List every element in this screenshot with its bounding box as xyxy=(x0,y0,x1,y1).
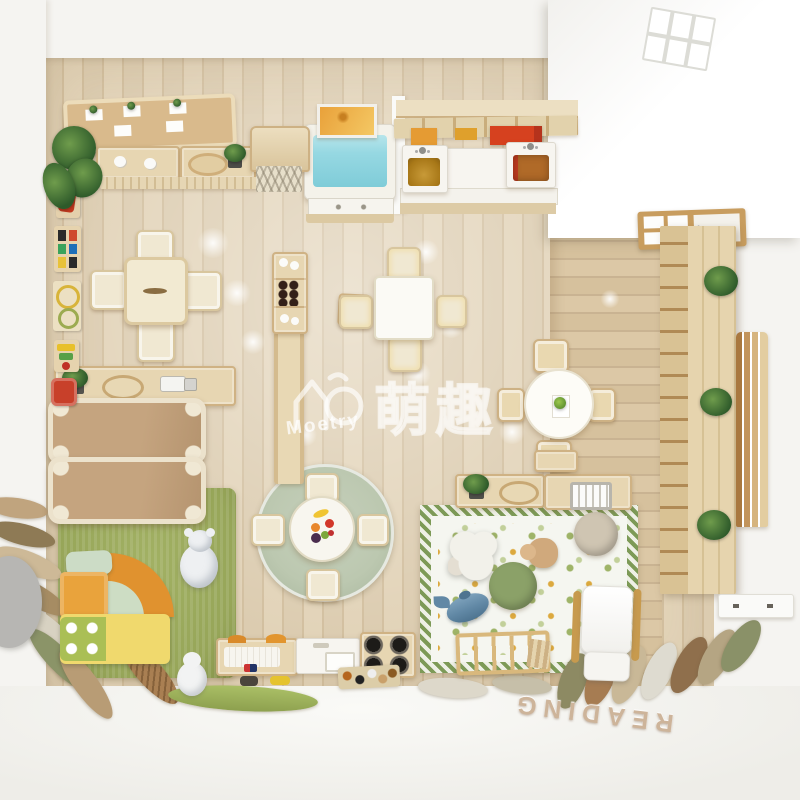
spiral-yellow xyxy=(56,285,80,309)
chair xyxy=(182,271,222,311)
toy-truck-cab xyxy=(184,378,197,391)
plush-head xyxy=(183,652,201,668)
bear-ear xyxy=(206,528,215,537)
peg xyxy=(69,230,77,241)
kitchen-sink-right xyxy=(506,142,556,188)
bear-ear xyxy=(184,528,193,537)
kitchen-unit-rolldoor xyxy=(216,638,298,676)
ceiling-light xyxy=(644,36,666,62)
soft-dots-green xyxy=(60,617,106,661)
cabinet-top-left xyxy=(96,146,180,180)
toy-orange xyxy=(311,523,320,532)
shelf-plant xyxy=(700,388,732,416)
chair xyxy=(533,339,569,373)
white-jar xyxy=(291,317,299,325)
soft-slab-yellow xyxy=(60,614,170,664)
white-jar xyxy=(290,261,299,270)
oval-tray xyxy=(499,481,539,505)
white-jar xyxy=(280,314,289,323)
peg xyxy=(58,244,66,255)
peg xyxy=(58,257,66,268)
oval-tray xyxy=(188,153,228,176)
light-reflection xyxy=(498,420,526,444)
table-plant xyxy=(554,397,566,409)
chair xyxy=(339,295,373,329)
chair xyxy=(436,295,467,328)
spiral-green xyxy=(58,308,79,329)
sink-basin-gold xyxy=(408,158,440,186)
left-wall xyxy=(0,0,46,800)
faucet xyxy=(419,147,426,154)
bookshelf-front xyxy=(660,226,688,594)
drawer-base xyxy=(306,214,394,223)
floor-toy-dark xyxy=(240,676,258,686)
reading-cabinet-2 xyxy=(544,474,632,510)
chair xyxy=(388,336,422,372)
stacker-green xyxy=(59,353,73,360)
toy-berry xyxy=(311,533,321,543)
shelf-plant xyxy=(697,510,731,540)
stacker-yellow xyxy=(57,344,75,351)
handle-slot xyxy=(313,643,329,648)
ceiling-light xyxy=(649,9,671,35)
light-reflection xyxy=(222,280,252,306)
stacker-red xyxy=(62,362,70,370)
busy-board-pegs xyxy=(54,226,81,272)
square-table-left xyxy=(124,257,188,325)
kitchen-counter-mid xyxy=(444,148,510,190)
bottle-tray xyxy=(337,664,400,689)
toy-cherry xyxy=(328,530,334,536)
polar-bear-plush xyxy=(176,530,222,590)
busy-board-spiral xyxy=(53,281,81,331)
ceiling-light xyxy=(692,17,714,43)
art-flower xyxy=(336,111,350,123)
busy-board-stacker xyxy=(54,340,79,372)
potted-plant-leaves xyxy=(224,144,246,162)
peg xyxy=(69,257,77,268)
chair-back-cushion xyxy=(580,585,633,655)
shelf-plant xyxy=(704,266,738,296)
water-basin xyxy=(313,135,387,187)
ladder-slats xyxy=(526,639,552,670)
soft-arch-inner xyxy=(108,581,144,617)
cups xyxy=(114,156,126,167)
peg xyxy=(69,244,77,255)
light-reflection xyxy=(240,330,266,354)
nap-cot xyxy=(48,398,206,464)
ceiling-light-grid xyxy=(642,7,716,72)
toy-train xyxy=(244,664,257,672)
floor-toy-yellow xyxy=(270,676,290,685)
teddy-head xyxy=(520,544,536,560)
chair xyxy=(497,388,525,422)
oval-basket xyxy=(102,375,144,400)
art-frame xyxy=(317,104,377,138)
hood-orange xyxy=(411,128,437,145)
chair-seat-cushion xyxy=(583,651,630,682)
cabinet-plant xyxy=(463,474,489,494)
wall-radiator xyxy=(718,594,794,618)
chair xyxy=(306,569,340,601)
white-plush-toy xyxy=(174,652,210,698)
chair xyxy=(90,270,128,310)
pouf-green xyxy=(489,562,537,610)
soft-block-orange xyxy=(60,572,108,618)
chair xyxy=(357,514,389,546)
light-reflection xyxy=(196,228,230,258)
faucet xyxy=(527,143,534,150)
lounge-chair xyxy=(570,585,645,683)
round-table-bottom xyxy=(289,496,355,562)
whale-tail xyxy=(434,596,450,609)
toy-orange-arc xyxy=(266,634,286,643)
light-reflection xyxy=(600,290,620,308)
ceiling-light xyxy=(670,13,692,39)
paper-sheet xyxy=(166,121,183,133)
hood-yellow xyxy=(455,128,477,140)
ceiling-light xyxy=(687,43,709,69)
cabinet-top-left-2 xyxy=(180,146,256,180)
toy-orange-arc xyxy=(228,635,246,643)
wood-box xyxy=(534,450,578,472)
toy-apple xyxy=(325,519,334,528)
toy-banana xyxy=(312,507,329,519)
table-groove xyxy=(143,288,167,294)
reading-cabinet-1 xyxy=(455,474,545,508)
pouf-beige xyxy=(574,512,618,556)
sink-basin-brown xyxy=(513,155,549,181)
climbing-net xyxy=(256,166,302,192)
cups xyxy=(144,158,156,169)
teddy-bear xyxy=(528,538,558,568)
nap-cot xyxy=(48,457,206,524)
leaning-wood-slats xyxy=(736,332,768,527)
busy-board-red-2 xyxy=(51,378,77,406)
console-table xyxy=(274,332,304,484)
ceiling-light xyxy=(666,39,688,65)
round-table-right xyxy=(524,369,594,439)
toy-crib xyxy=(570,482,612,510)
kitchen-base-wood xyxy=(400,203,556,214)
slatted-bench xyxy=(100,177,258,189)
kitchen-sink-left xyxy=(402,145,448,193)
classroom-top-view: READING Moetry 萌趣 xyxy=(0,0,800,800)
chair xyxy=(251,514,285,546)
bottle-shelf xyxy=(272,252,308,334)
square-table-center xyxy=(374,276,434,340)
peg xyxy=(58,230,66,241)
chair-frame-left xyxy=(571,591,582,663)
bottom-white-floor xyxy=(0,686,800,800)
bottles xyxy=(277,280,301,306)
paper-sheet xyxy=(114,125,131,137)
toy-truck xyxy=(160,376,186,392)
white-jar xyxy=(279,258,288,267)
